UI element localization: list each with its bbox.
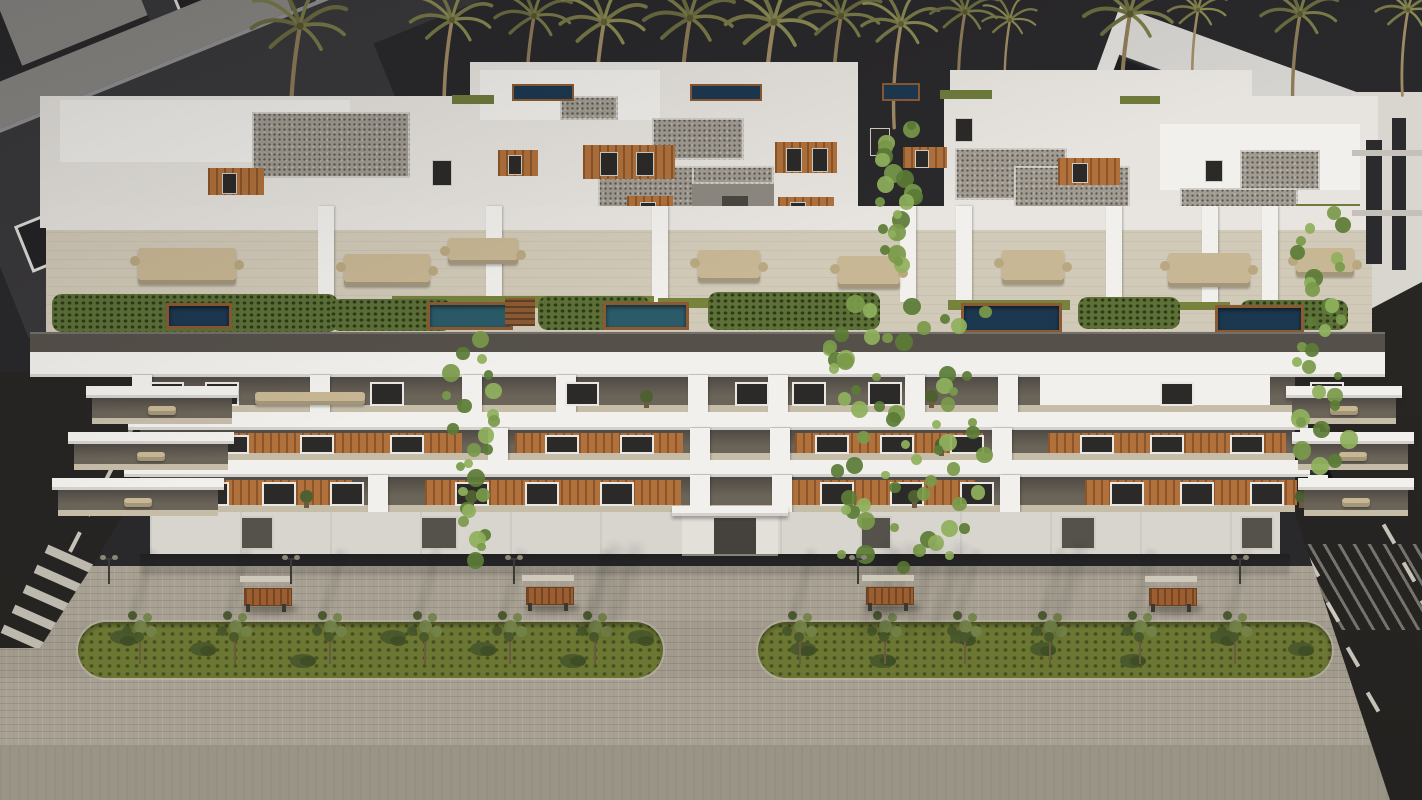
street-lamp <box>282 552 300 584</box>
street-lamp <box>100 552 118 584</box>
bench <box>522 575 578 611</box>
street-tree-trunk <box>139 640 141 664</box>
scene <box>0 0 1422 800</box>
street-tree-canopy <box>146 626 157 637</box>
bench-leg <box>904 603 908 611</box>
bench-leg <box>1151 604 1155 612</box>
lamp-head <box>1243 555 1249 560</box>
street-tree-trunk <box>1234 640 1236 664</box>
bench <box>1145 576 1201 612</box>
street-tree-trunk <box>424 640 426 664</box>
strip-bush <box>1130 656 1146 666</box>
lamp-head <box>100 555 106 560</box>
street-tree-trunk <box>234 640 236 664</box>
street-tree-canopy <box>431 626 442 637</box>
bench-pergola <box>522 575 574 581</box>
street-tree-trunk <box>884 640 886 664</box>
lamp-head <box>1231 555 1237 560</box>
street-tree-canopy <box>959 632 969 642</box>
lamp-head <box>861 555 867 560</box>
strip-bush <box>1298 646 1314 656</box>
street-tree-canopy <box>229 632 239 642</box>
bench-leg <box>528 603 532 611</box>
street-items <box>0 0 1422 800</box>
street-tree-trunk <box>594 640 596 664</box>
street-tree-canopy <box>419 632 429 642</box>
strip-bush <box>480 646 496 656</box>
tower-ledge <box>1352 210 1422 216</box>
tower-window-slot <box>1366 140 1382 264</box>
street-tree-canopy <box>513 613 522 622</box>
bench <box>862 575 918 611</box>
strip-bush <box>390 636 406 646</box>
strip-bush <box>200 646 216 656</box>
street-tree-trunk <box>1139 640 1141 664</box>
bench-leg <box>868 603 872 611</box>
street-tree-canopy <box>1238 613 1247 622</box>
bench-leg <box>1187 604 1191 612</box>
street-tree-canopy <box>324 632 334 642</box>
street-tree-canopy <box>1134 632 1144 642</box>
street-tree-canopy <box>134 632 144 642</box>
strip-bush <box>1040 646 1056 656</box>
street-lamp <box>849 552 867 584</box>
lamp-pole <box>1239 560 1241 584</box>
street-tree-trunk <box>329 640 331 664</box>
strip-bush <box>638 636 654 646</box>
strip-bush <box>880 656 896 666</box>
street-tree-trunk <box>964 640 966 664</box>
street-tree-canopy <box>1143 613 1152 622</box>
lamp-head <box>517 555 523 560</box>
street-tree-canopy <box>1146 626 1157 637</box>
street-tree-canopy <box>803 613 812 622</box>
lamp-head <box>112 555 118 560</box>
lamp-pole <box>857 560 859 584</box>
lamp-head <box>849 555 855 560</box>
street-tree-canopy <box>336 626 347 637</box>
street-tree-canopy <box>238 613 247 622</box>
bench-pergola <box>1145 576 1197 582</box>
street-tree-trunk <box>799 640 801 664</box>
tower-window-slot <box>1392 118 1406 270</box>
lamp-pole <box>513 560 515 584</box>
street-tree-canopy <box>968 613 977 622</box>
bench-leg <box>282 604 286 612</box>
street-tree-canopy <box>333 613 342 622</box>
bench-leg <box>246 604 250 612</box>
street-tree-trunk <box>1049 640 1051 664</box>
lamp-head <box>294 555 300 560</box>
bench-pergola <box>862 575 914 581</box>
lamp-head <box>282 555 288 560</box>
tower-ledge <box>1352 150 1422 156</box>
street-tree-canopy <box>516 626 527 637</box>
street-tree-canopy <box>806 626 817 637</box>
street-tree-canopy <box>1229 632 1239 642</box>
strip-bush <box>300 656 316 666</box>
street-tree-trunk <box>509 640 511 664</box>
strip-bush <box>570 656 586 666</box>
street-tree-canopy <box>241 626 252 637</box>
street-lamp <box>1231 552 1249 584</box>
street-tree-canopy <box>794 632 804 642</box>
street-lamp <box>505 552 523 584</box>
lamp-pole <box>108 560 110 584</box>
strip-bush <box>800 646 816 656</box>
lamp-head <box>505 555 511 560</box>
bench-leg <box>564 603 568 611</box>
street-tree-canopy <box>1241 626 1252 637</box>
street-tree-canopy <box>143 613 152 622</box>
street-tree-canopy <box>971 626 982 637</box>
street-tree-canopy <box>428 613 437 622</box>
lamp-pole <box>290 560 292 584</box>
street-tree-canopy <box>504 632 514 642</box>
